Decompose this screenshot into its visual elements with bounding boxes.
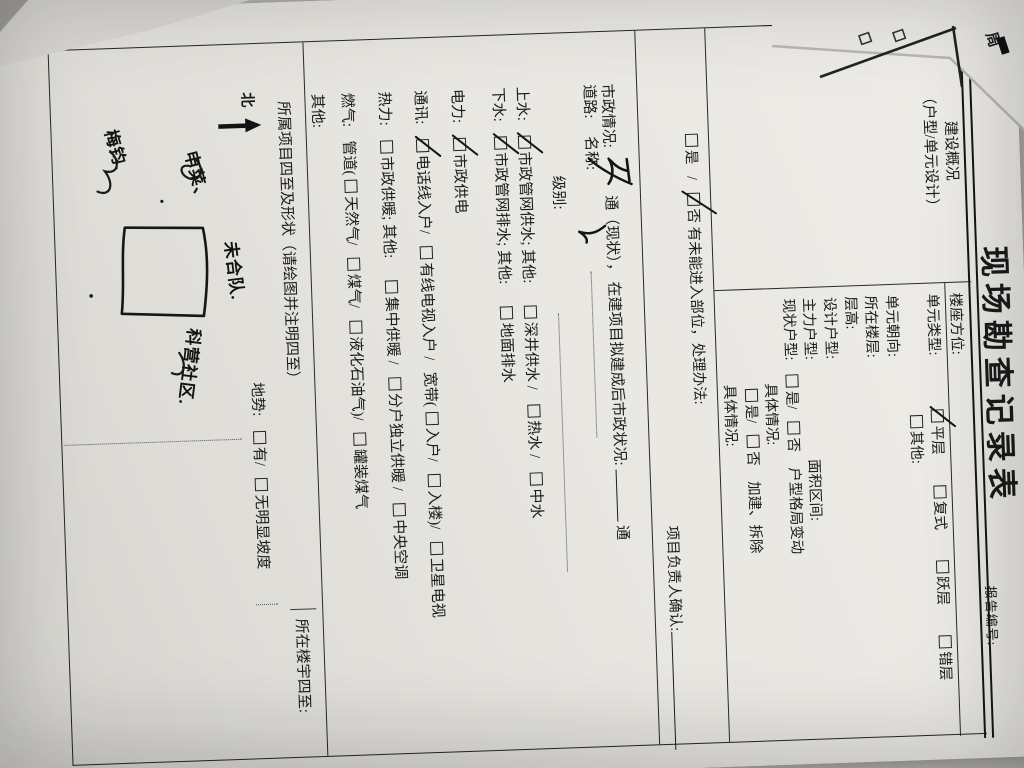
photo-of-survey-form: 现场勘查记录表 报告编号: 建设概况 （户型/单元设计） 楼座方位: 单元类型:	[0, 0, 1024, 768]
overlapping-sheet-fragment: 周	[0, 0, 1024, 768]
